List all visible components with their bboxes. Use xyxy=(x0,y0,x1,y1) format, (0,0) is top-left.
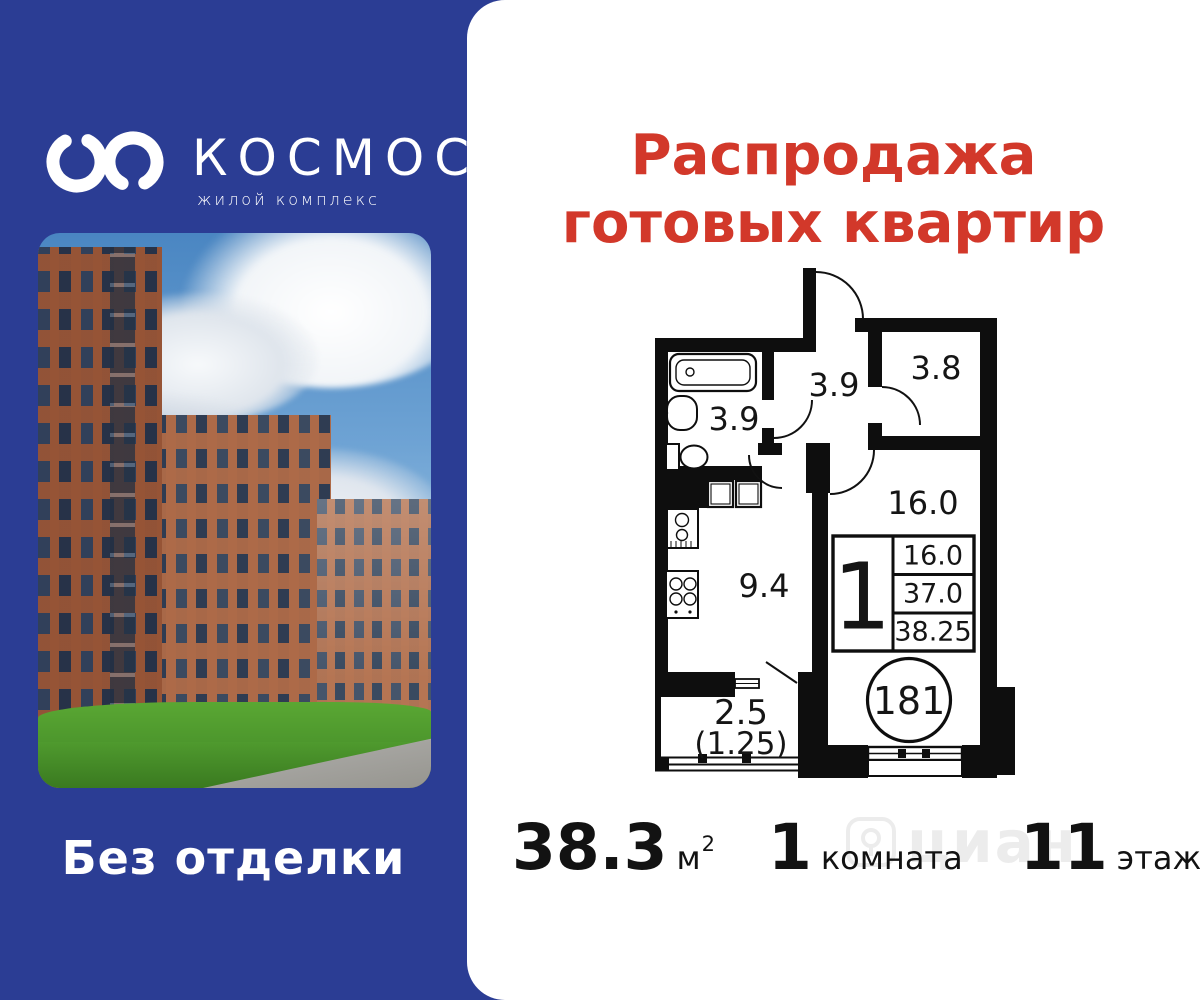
floor-label: этаж xyxy=(1117,839,1200,877)
stat-rooms: 1 комната xyxy=(768,816,963,879)
area-unit-sup: 2 xyxy=(702,832,715,856)
ad-poster: КОСМОС жилой комплекс Без отделки Распро… xyxy=(0,0,1200,1000)
hallway-area-label: 3.9 xyxy=(809,366,860,404)
brand-logo: КОСМОС жилой комплекс xyxy=(45,128,445,208)
unit-number-badge: 181 xyxy=(868,659,951,742)
stat-total-area: 38.3 м2 xyxy=(512,816,715,879)
sink-icon xyxy=(667,396,697,430)
balcony-reduced-label: (1.25) xyxy=(694,726,787,762)
toilet-icon xyxy=(666,444,679,470)
promo-title-line2: готовых квартир xyxy=(467,190,1200,258)
area-unit-letter: м xyxy=(676,839,700,877)
bedroom-area-label: 3.8 xyxy=(911,349,962,387)
kitchen-area-label: 9.4 xyxy=(739,567,790,605)
brand-name: КОСМОС xyxy=(192,133,479,183)
walls xyxy=(655,268,1015,778)
area-value: 38.3 xyxy=(512,816,667,879)
promo-title-line1: Распродажа xyxy=(467,122,1200,190)
promo-title: Распродажа готовых квартир xyxy=(467,122,1200,258)
apartment-info-table: 1 16.0 37.0 38.25 xyxy=(833,536,974,651)
content-panel: Распродажа готовых квартир xyxy=(467,0,1200,1000)
rooms-count: 1 xyxy=(833,544,892,651)
living-area-label: 16.0 xyxy=(887,484,958,522)
living-area-value: 16.0 xyxy=(903,541,963,572)
bathroom-area-label: 3.9 xyxy=(709,400,760,438)
stat-floor: 11 этаж xyxy=(1020,816,1200,879)
floor-value: 11 xyxy=(1020,816,1108,879)
area-no-balcony-value: 37.0 xyxy=(903,579,963,610)
unit-number: 181 xyxy=(873,679,946,723)
building-photo xyxy=(38,233,431,788)
rooms-value: 1 xyxy=(768,816,812,879)
brand-subtitle: жилой комплекс xyxy=(197,190,380,209)
finish-status-label: Без отделки xyxy=(0,831,467,885)
area-unit: м2 xyxy=(676,832,715,877)
rooms-label: комната xyxy=(821,839,963,877)
total-area-value: 38.25 xyxy=(894,617,971,648)
infinity-logo-icon xyxy=(45,131,165,193)
floorplan: 3.9 3.9 3.8 16.0 9.4 2.5 (1.25) 1 16.0 3… xyxy=(650,262,1020,784)
